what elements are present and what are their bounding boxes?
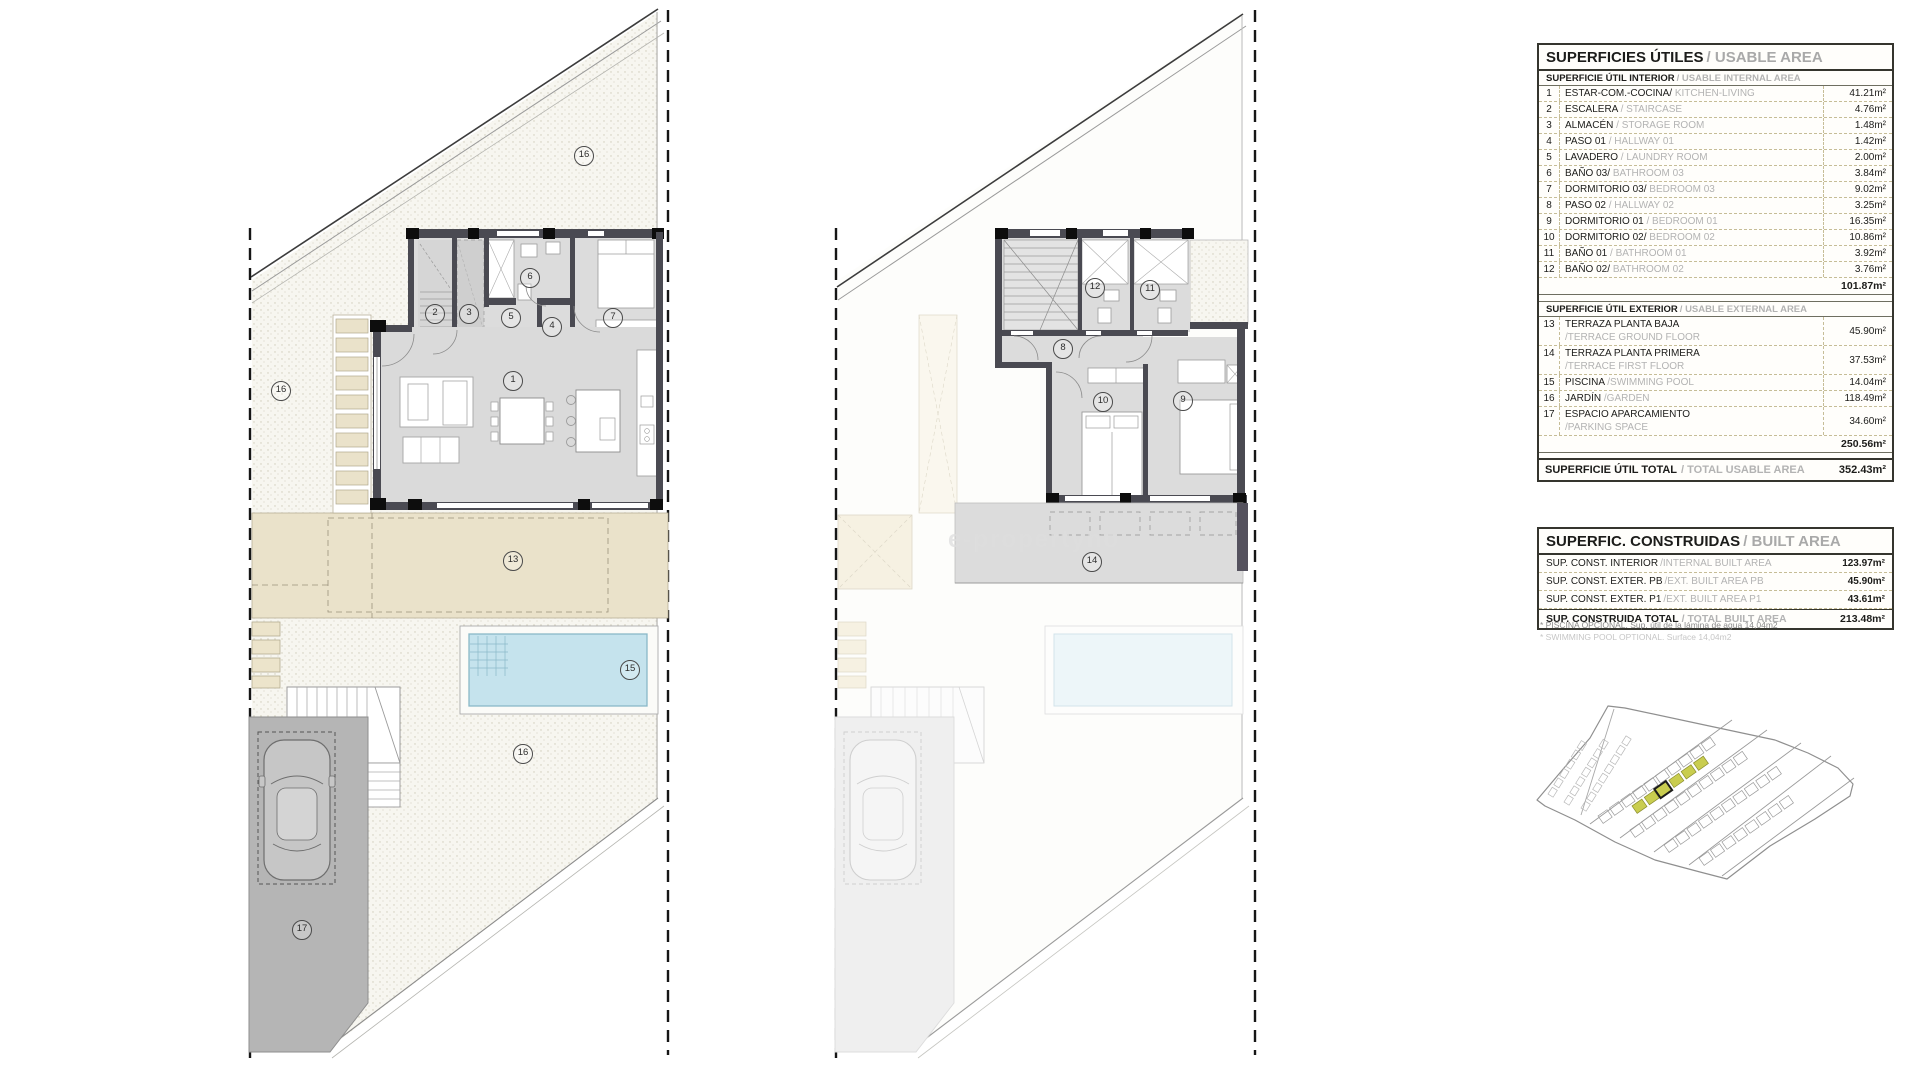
plan-label: 17 [292, 920, 312, 940]
footnote-en: * SWIMMING POOL OPTIONAL. Surface 14,04m… [1540, 631, 1778, 643]
parking-area [249, 717, 368, 1052]
footnote-es: * PISCINA OPCIONAL. Sup. útil de la lámi… [1540, 619, 1778, 631]
plan-label: 16 [513, 744, 533, 764]
built-area-table: SUPERFIC. CONSTRUIDAS/ BUILT AREA SUP. C… [1537, 527, 1894, 630]
table-row: 7 DORMITORIO 03/ BEDROOM 03 9.02m² [1539, 182, 1892, 198]
plan-label: 15 [620, 660, 640, 680]
plan-label: 16 [271, 381, 291, 401]
ground-floor-plan [249, 9, 668, 1058]
plan-label: 6 [520, 268, 540, 288]
table-row: 5 LAVADERO / LAUNDRY ROOM 2.00m² [1539, 150, 1892, 166]
table-row: 12 BAÑO 02/ BATHROOM 02 3.76m² [1539, 262, 1892, 278]
section-header-exterior: SUPERFICIE ÚTIL EXTERIOR/ USABLE EXTERNA… [1539, 301, 1892, 317]
plan-label: 8 [1053, 339, 1073, 359]
plan-label: 9 [1173, 391, 1193, 411]
exterior-rows: 13 TERRAZA PLANTA BAJA /TERRACE GROUND F… [1539, 317, 1892, 436]
built-rows: SUP. CONST. INTERIOR/INTERNAL BUILT AREA… [1539, 555, 1892, 609]
table-row: 10 DORMITORIO 02/ BEDROOM 02 10.86m² [1539, 230, 1892, 246]
site-location-map [1537, 706, 1854, 879]
floor-plan-sheet: e-propertyno 16 16 2 3 5 6 4 7 1 13 15 1… [0, 0, 1920, 1080]
table-row: 11 BAÑO 01 / BATHROOM 01 3.92m² [1539, 246, 1892, 262]
table-row: 9 DORMITORIO 01 / BEDROOM 01 16.35m² [1539, 214, 1892, 230]
exterior-subtotal: 250.56m² [1539, 436, 1892, 453]
table-row: 17 ESPACIO APARCAMIENTO /PARKING SPACE 3… [1539, 407, 1892, 436]
table-row: SUP. CONST. EXTER. P1/EXT. BUILT AREA P1… [1539, 591, 1892, 609]
plan-label: 14 [1082, 552, 1102, 572]
plan-label: 5 [501, 308, 521, 328]
table-row: 8 PASO 02 / HALLWAY 02 3.25m² [1539, 198, 1892, 214]
plan-label: 16 [574, 146, 594, 166]
table-row: 13 TERRAZA PLANTA BAJA /TERRACE GROUND F… [1539, 317, 1892, 346]
plan-label: 2 [425, 304, 445, 324]
plan-label: 1 [503, 371, 523, 391]
table-row: 6 BAÑO 03/ BATHROOM 03 3.84m² [1539, 166, 1892, 182]
section-header-interior: SUPERFICIE ÚTIL INTERIOR/ USABLE INTERNA… [1539, 71, 1892, 86]
table-row: 16 JARDÍN /GARDEN 118.49m² [1539, 391, 1892, 407]
footnotes: * PISCINA OPCIONAL. Sup. útil de la lámi… [1540, 619, 1778, 644]
table-row: 1 ESTAR-COM.-COCINA/ KITCHEN-LIVING 41.2… [1539, 86, 1892, 102]
interior-rows: 1 ESTAR-COM.-COCINA/ KITCHEN-LIVING 41.2… [1539, 86, 1892, 278]
plan-label: 13 [503, 551, 523, 571]
plan-label: 7 [603, 308, 623, 328]
table-row: 15 PISCINA /SWIMMING POOL 14.04m² [1539, 375, 1892, 391]
car-icon [259, 740, 335, 880]
watermark: e-propertyno [948, 526, 1120, 554]
plan-label: 10 [1093, 392, 1113, 412]
table-title: SUPERFICIES ÚTILES/ USABLE AREA [1539, 45, 1892, 71]
plan-label: 12 [1085, 278, 1105, 298]
pergola [333, 315, 371, 513]
staircase [1004, 240, 1078, 330]
plan-label: 11 [1140, 280, 1160, 300]
interior-subtotal: 101.87m² [1539, 278, 1892, 295]
table-row: SUP. CONST. INTERIOR/INTERNAL BUILT AREA… [1539, 555, 1892, 573]
table-row: 4 PASO 01 / HALLWAY 01 1.42m² [1539, 134, 1892, 150]
plan-label: 3 [459, 304, 479, 324]
table-title: SUPERFIC. CONSTRUIDAS/ BUILT AREA [1539, 529, 1892, 555]
table-row: 14 TERRAZA PLANTA PRIMERA /TERRACE FIRST… [1539, 346, 1892, 375]
usable-total-row: SUPERFICIE ÚTIL TOTAL / TOTAL USABLE ARE… [1539, 458, 1892, 480]
table-row: SUP. CONST. EXTER. PB/EXT. BUILT AREA PB… [1539, 573, 1892, 591]
plan-label: 4 [542, 317, 562, 337]
terrace-ground [252, 513, 668, 618]
table-row: 2 ESCALERA / STAIRCASE 4.76m² [1539, 102, 1892, 118]
table-row: 3 ALMACÉN / STORAGE ROOM 1.48m² [1539, 118, 1892, 134]
usable-area-table: SUPERFICIES ÚTILES/ USABLE AREA SUPERFIC… [1537, 43, 1894, 482]
